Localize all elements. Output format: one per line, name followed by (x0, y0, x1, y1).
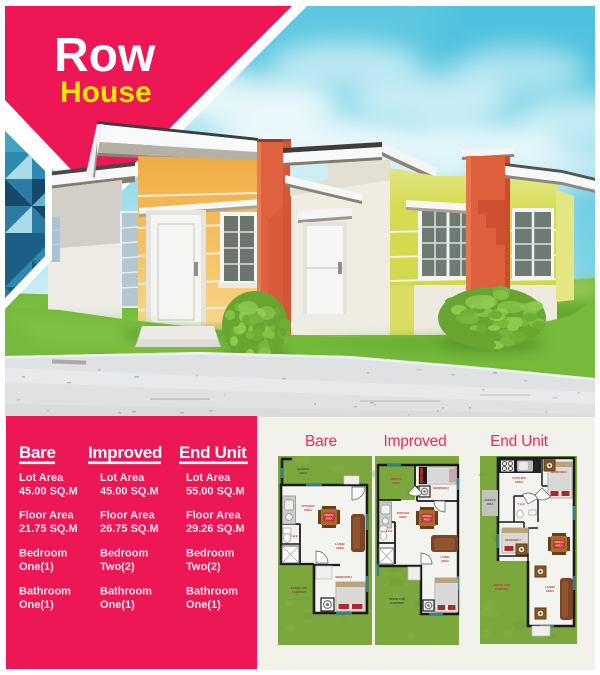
svg-text:AREA: AREA (299, 471, 308, 475)
svg-text:T & B: T & B (386, 529, 393, 533)
svg-text:DINING: DINING (554, 540, 563, 544)
svg-text:Floor Area: Floor Area (100, 510, 155, 522)
svg-text:AREA: AREA (515, 480, 524, 484)
svg-text:AREA: AREA (555, 544, 562, 548)
svg-text:BEDROOM 2: BEDROOM 2 (433, 486, 449, 490)
svg-text:AREA: AREA (304, 508, 313, 512)
svg-text:CARPORT: CARPORT (390, 601, 404, 605)
svg-text:Lot Area: Lot Area (100, 472, 145, 484)
svg-text:One(1): One(1) (100, 599, 135, 611)
svg-text:Lot Area: Lot Area (186, 472, 231, 484)
svg-text:End Unit: End Unit (179, 443, 247, 462)
svg-text:One(1): One(1) (186, 599, 221, 611)
svg-text:26.75 SQ.M: 26.75 SQ.M (100, 523, 159, 535)
svg-text:One(1): One(1) (19, 599, 54, 611)
svg-text:AREA: AREA (399, 515, 407, 519)
svg-text:Bare: Bare (305, 433, 337, 450)
svg-text:AREA: AREA (546, 589, 555, 593)
svg-text:House: House (60, 76, 152, 109)
svg-text:Improved: Improved (88, 443, 162, 462)
svg-text:45.00 SQ.M: 45.00 SQ.M (100, 486, 159, 498)
svg-text:One(1): One(1) (19, 561, 54, 573)
svg-text:DINING: DINING (422, 514, 431, 518)
svg-text:Bare: Bare (19, 443, 56, 462)
svg-text:Two(2): Two(2) (186, 561, 221, 573)
svg-text:Bedroom: Bedroom (19, 548, 68, 560)
svg-text:Bathroom: Bathroom (100, 586, 152, 598)
svg-text:Floor Area: Floor Area (186, 510, 241, 522)
svg-text:Bathroom: Bathroom (186, 586, 238, 598)
svg-text:BEDROOM 1: BEDROOM 1 (505, 538, 521, 542)
svg-text:Row: Row (54, 29, 156, 82)
svg-text:29.26 SQ.M: 29.26 SQ.M (186, 523, 245, 535)
svg-text:CARPORT: CARPORT (292, 590, 307, 594)
svg-text:AREA: AREA (423, 518, 430, 522)
svg-text:45.00 SQ.M: 45.00 SQ.M (19, 486, 78, 498)
svg-text:DINING: DINING (324, 513, 333, 517)
svg-text:CARPORT: CARPORT (495, 587, 510, 591)
svg-text:Improved: Improved (383, 433, 446, 450)
svg-text:T & B: T & B (290, 534, 297, 538)
svg-text:T & B: T & B (517, 502, 524, 506)
svg-text:AREA: AREA (392, 481, 400, 485)
svg-text:BEDROOM 1: BEDROOM 1 (336, 575, 353, 579)
svg-text:AREA: AREA (325, 517, 332, 521)
svg-text:Bathroom: Bathroom (19, 586, 71, 598)
svg-text:55.00 SQ.M: 55.00 SQ.M (186, 486, 245, 498)
svg-text:21.75 SQ.M: 21.75 SQ.M (19, 523, 78, 535)
svg-text:AREA: AREA (486, 502, 493, 506)
svg-text:AREA: AREA (336, 546, 345, 550)
svg-text:End Unit: End Unit (490, 433, 549, 450)
svg-text:Bedroom: Bedroom (100, 548, 149, 560)
svg-text:Bedroom: Bedroom (186, 548, 235, 560)
svg-text:Floor Area: Floor Area (19, 510, 74, 522)
svg-text:AREA: AREA (441, 559, 449, 563)
svg-text:Two(2): Two(2) (100, 561, 135, 573)
svg-text:SERVICE: SERVICE (484, 498, 496, 502)
svg-text:Lot Area: Lot Area (19, 472, 64, 484)
